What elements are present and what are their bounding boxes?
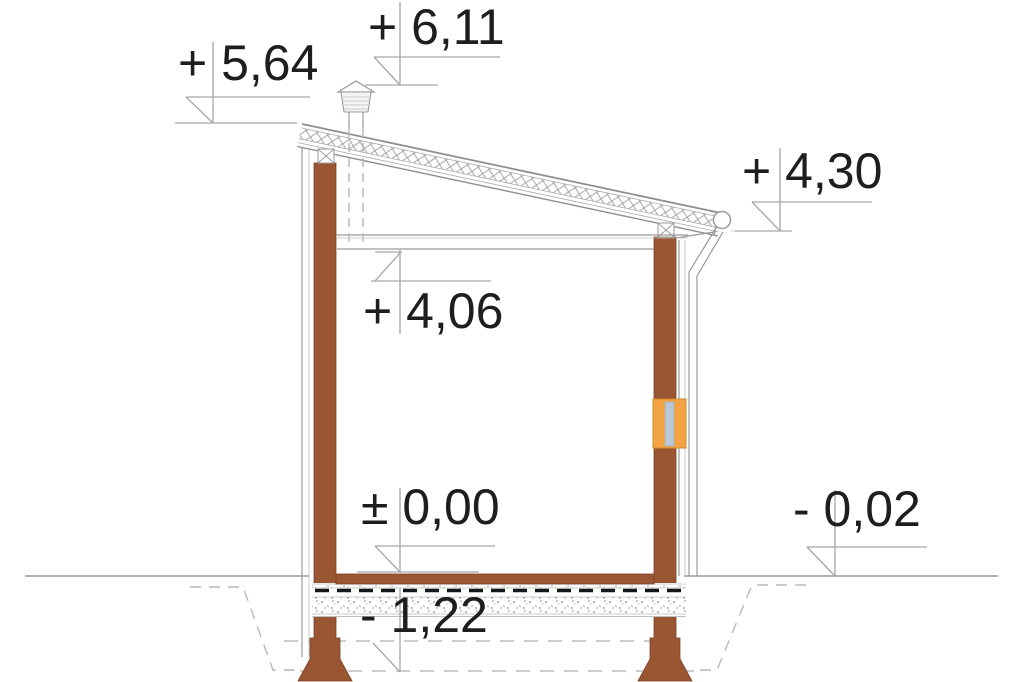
- glass-pane: [665, 402, 674, 446]
- wall-plate-left: [318, 149, 334, 163]
- window-frame-section: [653, 399, 686, 448]
- level-label-exterior-ground: - 0,02: [793, 484, 921, 534]
- roof-assembly: [297, 124, 722, 238]
- level-label-chimney-top: + 6,11: [368, 2, 505, 52]
- excavation-outline-right: [694, 585, 806, 670]
- cross-section-drawing: + 6,11 + 5,64 + 4,30 + 4,06 ± 0,00 - 0,0…: [0, 0, 1024, 682]
- section-linework: [0, 0, 1024, 682]
- level-label-foundation-bottom: - 1,22: [360, 590, 488, 640]
- gutter: [714, 212, 751, 232]
- floor-beam: [336, 574, 654, 584]
- excavation-outline-left: [190, 587, 301, 670]
- wall-cladding-left: [302, 126, 309, 657]
- level-label-eaves-gutter: + 4,30: [742, 146, 882, 196]
- level-label-ceiling: + 4,06: [363, 286, 503, 336]
- ceiling-lines: [336, 235, 688, 249]
- downspout: [689, 228, 723, 576]
- chimney-vent: [338, 81, 374, 248]
- level-label-roof-high-edge: + 5,64: [178, 38, 318, 88]
- level-label-finished-floor: ± 0,00: [361, 482, 500, 532]
